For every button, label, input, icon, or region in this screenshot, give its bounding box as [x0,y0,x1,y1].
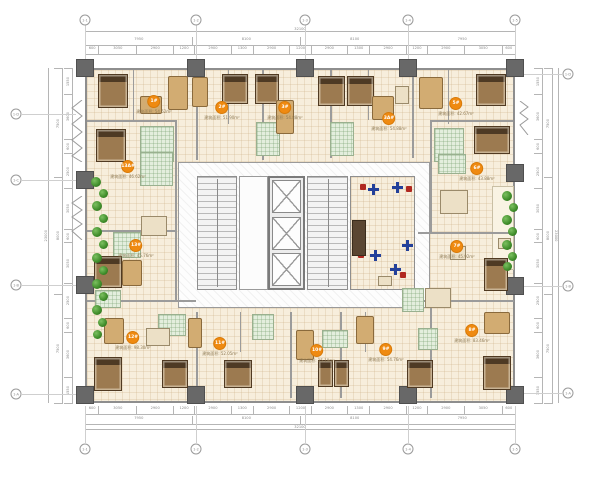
unit-label-group: 12# 建筑面积: 98.30m² [115,331,151,351]
unit-label-group: 10# 建筑面积: 35.19m² [299,344,335,364]
grid-bubble: 1-4 [403,444,414,455]
unit-area-text: 建筑面积: 54.62m² [136,109,172,115]
unit-label-group: 8# 建筑面积: 83.46m² [454,324,490,344]
unit-area-text: 建筑面积: 46.62m² [110,174,146,180]
unit-label-group: 13# 建筑面积: 45.76m² [118,239,154,259]
unit-badge: 12# [126,331,139,344]
unit-area-text: 建筑面积: 54.88m² [267,115,303,121]
grid-bubble: 1-4 [403,15,414,26]
unit-badge: 6# [470,162,483,175]
grid-bubble: 1-2 [191,15,202,26]
unit-area-text: 建筑面积: 45.92m² [439,254,475,260]
unit-badge: 8# [465,324,478,337]
unit-label-group: 2# 建筑面积: 51.90m² [204,101,240,121]
unit-area-text: 建筑面积: 54.88m² [371,126,407,132]
unit-label-group: 3# 建筑面积: 54.88m² [267,101,303,121]
unit-label-group: 9# 建筑面积: 54.76m² [368,343,404,363]
grid-bubble: 1-A [563,388,574,399]
unit-area-text: 建筑面积: 83.46m² [454,338,490,344]
grid-bubble: 1-3 [300,444,311,455]
unit-badge: 13A# [121,160,134,173]
unit-label-group: 5# 建筑面积: 42.67m² [438,97,474,117]
floor-plan: 32100 7950810081007950 60030502900120029… [0,0,608,478]
unit-area-text: 建筑面积: 51.90m² [204,115,240,121]
grid-bubble: 1-5 [510,15,521,26]
unit-label-group: 7# 建筑面积: 45.92m² [439,240,475,260]
grid-bubble: 1-3 [300,15,311,26]
unit-badge: 2# [215,101,228,114]
grid-bubble: 1-B [11,280,22,291]
unit-area-text: 建筑面积: 45.76m² [118,253,154,259]
unit-label-group: 1# 建筑面积: 54.62m² [136,95,172,115]
unit-badge: 7# [450,240,463,253]
unit-badge: 11# [213,337,226,350]
unit-badge: 3# [278,101,291,114]
unit-label-group: 3A# 建筑面积: 54.88m² [371,112,407,132]
unit-label-group: 13A# 建筑面积: 46.62m² [110,160,146,180]
grid-bubble: 1-1 [80,15,91,26]
unit-area-text: 建筑面积: 42.67m² [438,111,474,117]
grid-bubble: 1-D [11,109,22,120]
unit-area-text: 建筑面积: 54.76m² [368,357,404,363]
unit-area-text: 建筑面积: 35.19m² [299,358,335,364]
grid-bubble: 1-A [11,389,22,400]
unit-area-text: 建筑面积: 98.30m² [115,345,151,351]
unit-badge: 3A# [382,112,395,125]
grid-bubble: 1-1 [80,444,91,455]
unit-area-text: 建筑面积: 43.88m² [459,176,495,182]
grid-bubble: 1-B [563,281,574,292]
unit-badge: 5# [449,97,462,110]
unit-label-group: 11# 建筑面积: 52.05m² [202,337,238,357]
grid-bubble: 1-C [11,175,22,186]
unit-area-text: 建筑面积: 52.05m² [202,351,238,357]
unit-badge: 9# [379,343,392,356]
grid-bubble: 1-2 [191,444,202,455]
grid-bubble: 1-5 [510,444,521,455]
unit-label-group: 6# 建筑面积: 43.88m² [459,162,495,182]
unit-badge: 10# [310,344,323,357]
units-layer: 1# 建筑面积: 54.62m² 2# 建筑面积: 51.90m² 3# 建筑面… [0,0,608,478]
unit-badge: 13# [129,239,142,252]
unit-badge: 1# [147,95,160,108]
grid-bubble: 1-D [563,69,574,80]
